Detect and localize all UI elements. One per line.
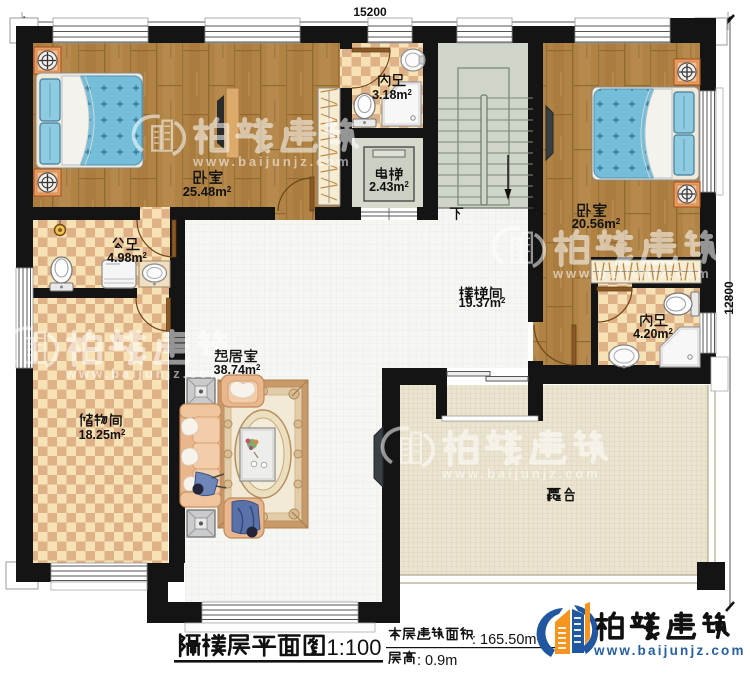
svg-text:3.18m2: 3.18m2 <box>372 88 412 102</box>
svg-text:4.98m2: 4.98m2 <box>107 251 147 265</box>
svg-text:12800: 12800 <box>722 281 736 315</box>
svg-text:2.43m2: 2.43m2 <box>369 180 409 194</box>
svg-text:www.baijunjz.com: www.baijunjz.com <box>65 366 225 381</box>
svg-text:19.37m2: 19.37m2 <box>459 296 506 310</box>
svg-text:www.baijunjz.com: www.baijunjz.com <box>593 643 746 658</box>
svg-text:25.48m2: 25.48m2 <box>183 184 232 199</box>
svg-text:www.baijunjz.com: www.baijunjz.com <box>552 266 712 281</box>
svg-text:www.baijunjz.com: www.baijunjz.com <box>192 154 352 169</box>
svg-text:38.74m2: 38.74m2 <box>214 363 261 377</box>
svg-text:: 0.9m: : 0.9m <box>417 653 457 669</box>
svg-text:www.baijunjz.com: www.baijunjz.com <box>441 466 601 481</box>
svg-text:1:100: 1:100 <box>326 635 381 660</box>
svg-text:15200: 15200 <box>353 5 387 19</box>
svg-text:18.25m2: 18.25m2 <box>79 428 126 442</box>
svg-text:20.56m2: 20.56m2 <box>572 216 621 231</box>
svg-text:: 165.50m2: : 165.50m2 <box>472 632 542 648</box>
svg-text:4.20m2: 4.20m2 <box>633 327 673 341</box>
